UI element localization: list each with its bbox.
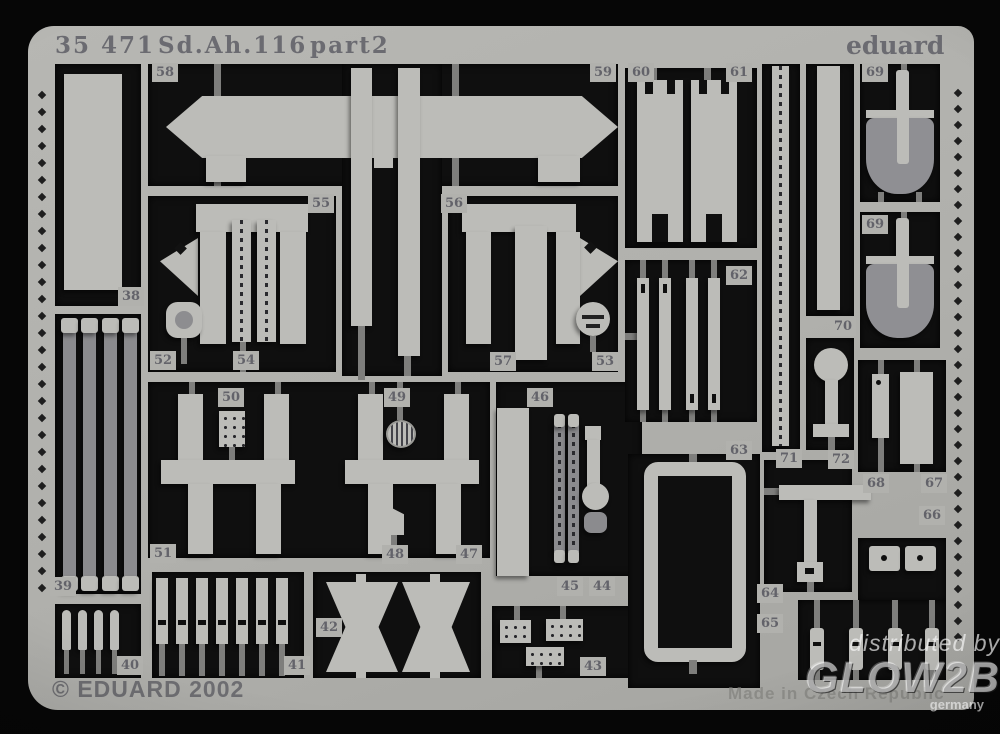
part-label-50: 50 — [218, 388, 244, 407]
part-nub — [356, 574, 366, 584]
registration-dot — [38, 431, 46, 439]
registration-dot — [954, 153, 962, 161]
etched-slot — [158, 620, 166, 625]
registration-dot — [38, 465, 46, 473]
registration-dot — [954, 185, 962, 193]
part-39-cap — [102, 576, 119, 591]
part-label-40: 40 — [117, 656, 143, 675]
sprue-connector — [590, 336, 596, 352]
part-foot — [206, 156, 246, 182]
part-label-54: 54 — [233, 351, 259, 370]
sprue-connector — [914, 464, 920, 472]
part-label-69: 69 — [862, 63, 888, 82]
part-45-cap — [554, 550, 565, 563]
etched-notch — [805, 568, 814, 574]
sprue-connector — [239, 644, 245, 676]
registration-dot — [38, 142, 46, 150]
part-55-bracket — [196, 204, 308, 232]
sprue-connector — [80, 650, 85, 674]
sprue-connector — [914, 360, 920, 372]
part-55-leg — [280, 232, 306, 344]
registration-dot — [954, 233, 962, 241]
part-69-shaft — [897, 260, 909, 308]
etched-hole — [876, 380, 881, 385]
registration-dot — [954, 393, 962, 401]
registration-dot — [38, 533, 46, 541]
part-45-cap — [554, 414, 565, 427]
registration-dot — [38, 210, 46, 218]
part-label-69: 69 — [862, 215, 888, 234]
registration-dot — [954, 601, 962, 609]
part-vertical-strip — [351, 68, 372, 326]
part-41-tooth — [176, 578, 188, 644]
sprue-connector — [625, 333, 637, 340]
sprue-connector — [878, 360, 884, 374]
part-45-cap — [568, 414, 579, 427]
registration-dot — [954, 105, 962, 113]
registration-dot — [38, 567, 46, 575]
part-45-strip — [554, 424, 565, 552]
etched-slot — [198, 620, 206, 625]
part-label-44: 44 — [589, 577, 615, 596]
registration-dot — [954, 553, 962, 561]
etched-notch — [645, 80, 653, 94]
etched-slot — [278, 620, 286, 625]
part-40-pin — [110, 610, 119, 650]
part-40-pin — [78, 610, 87, 650]
etched-mark — [641, 284, 645, 293]
part-51-bracket-leg — [256, 484, 281, 554]
part-39-strip — [124, 330, 137, 576]
part-39-strip — [83, 330, 96, 576]
sprue-connector — [275, 382, 281, 394]
photo-etch-sheet-photo: 35 471 Sd.Ah.116 part2 eduard — [0, 0, 1000, 734]
part-label-65: 65 — [757, 614, 783, 633]
registration-dot — [954, 377, 962, 385]
distributor-watermark: distributed by GLOW2B germany — [758, 632, 1000, 711]
etched-hole — [881, 555, 887, 561]
part-64-stem — [804, 500, 817, 564]
registration-dot — [954, 249, 962, 257]
sprue-connector — [560, 606, 566, 619]
sprue-connector — [455, 382, 461, 394]
part-label-64: 64 — [757, 584, 783, 603]
part-label-43: 43 — [580, 657, 606, 676]
part-62-strip — [659, 278, 671, 410]
registration-dot — [38, 261, 46, 269]
sprue-connector — [159, 644, 165, 676]
sprue-connector — [878, 438, 884, 472]
part-43-plate — [546, 619, 583, 641]
part-label-48: 48 — [382, 545, 408, 564]
registration-dot — [38, 380, 46, 388]
part-51-bracket-bar — [161, 460, 295, 484]
registration-dot — [38, 295, 46, 303]
registration-dot — [954, 345, 962, 353]
part-72-base — [813, 424, 849, 437]
part-41-tooth — [276, 578, 288, 644]
part-39-cap — [61, 318, 78, 333]
registration-dot — [954, 313, 962, 321]
sprue-connector — [892, 600, 898, 630]
part-label-42: 42 — [316, 618, 342, 637]
part-54-strip — [257, 220, 276, 342]
sprue-connector — [259, 644, 265, 676]
part-51-bracket-leg — [178, 394, 203, 466]
registration-dot — [954, 505, 962, 513]
part-41-tooth — [196, 578, 208, 644]
part-44-tab — [585, 426, 601, 440]
part-63-frame — [644, 462, 746, 662]
registration-dot — [954, 441, 962, 449]
part-47-bracket-leg — [436, 484, 461, 554]
registration-dot — [38, 312, 46, 320]
registration-dot — [954, 489, 962, 497]
part-label-67: 67 — [921, 474, 947, 493]
part-72-stem — [825, 380, 838, 426]
part-47-bracket-leg — [444, 394, 469, 466]
registration-dot — [38, 516, 46, 524]
sprue-connector — [764, 488, 779, 495]
sprue-connector — [536, 666, 542, 678]
sprue-connector — [689, 660, 697, 674]
registration-dot — [954, 473, 962, 481]
part-53-slotted-disc — [576, 302, 610, 336]
part-43-plate — [500, 620, 531, 643]
part-39-strip — [63, 330, 76, 576]
registration-dot — [38, 91, 46, 99]
part-39-cap — [81, 576, 98, 591]
sprue-connector — [179, 644, 185, 676]
registration-dot — [954, 617, 962, 625]
registration-dot — [38, 550, 46, 558]
part-label-63: 63 — [726, 441, 752, 460]
registration-dot — [954, 329, 962, 337]
part-57-strip — [515, 226, 547, 360]
part-41-tooth — [236, 578, 248, 644]
registration-dot — [954, 281, 962, 289]
part-label-51: 51 — [150, 544, 176, 563]
etched-notch — [706, 214, 722, 242]
sprue-connector — [181, 338, 187, 364]
sprue-connector — [96, 650, 101, 674]
sprue-connector — [229, 447, 235, 460]
registration-dot — [38, 584, 46, 592]
catalog-number: 35 471 — [55, 32, 155, 59]
part-41-tooth — [156, 578, 168, 644]
sprue-connector — [807, 582, 814, 592]
registration-dot — [38, 363, 46, 371]
part-39-cap — [81, 318, 98, 333]
part-label-61: 61 — [726, 63, 752, 82]
part-label-72: 72 — [828, 450, 854, 469]
part-47-bracket-leg — [358, 394, 383, 466]
registration-dot — [38, 397, 46, 405]
registration-dot — [38, 244, 46, 252]
part-46-plate — [497, 408, 529, 576]
part-49-grille — [386, 420, 416, 448]
registration-dot — [38, 346, 46, 354]
fret-plate: 35 471 Sd.Ah.116 part2 eduard — [28, 26, 974, 710]
part-39-cap — [122, 576, 139, 591]
registration-dot — [954, 89, 962, 97]
part-39-cap — [122, 318, 139, 333]
watermark-line1: distributed by — [758, 632, 1000, 655]
part-vertical-strip — [398, 68, 420, 356]
part-44-stem — [587, 440, 600, 486]
watermark-logo: GLOW2B — [758, 657, 1000, 700]
part-nub — [430, 574, 440, 584]
part-39-cap — [102, 318, 119, 333]
sprue-connector — [214, 64, 221, 98]
registration-dot — [954, 137, 962, 145]
registration-dot — [954, 121, 962, 129]
part-62-strip — [708, 278, 720, 410]
sprue-connector — [828, 437, 835, 450]
part-58-59-long-bar — [166, 96, 618, 158]
registration-dot — [38, 176, 46, 184]
sprue-connector — [369, 382, 375, 394]
registration-dot — [954, 537, 962, 545]
part-foot — [538, 156, 580, 182]
part-72-head — [814, 348, 848, 382]
registration-dot — [38, 278, 46, 286]
registration-dot — [38, 448, 46, 456]
registration-dot — [38, 227, 46, 235]
sprue-connector — [358, 326, 365, 380]
registration-dot — [38, 125, 46, 133]
registration-dot — [954, 201, 962, 209]
registration-dot — [954, 585, 962, 593]
part-39-strip — [104, 330, 117, 576]
part-69-shaft — [897, 114, 909, 164]
registration-dot — [954, 425, 962, 433]
sprue-connector — [199, 644, 205, 676]
part-label-49: 49 — [384, 388, 410, 407]
sprue-connector — [878, 192, 884, 202]
sprue-connector — [219, 644, 225, 676]
sprue-connector — [814, 600, 820, 630]
part-55-leg — [200, 232, 226, 344]
part-nub — [430, 670, 440, 678]
brand-logo: eduard — [846, 31, 944, 60]
part-44-ball — [582, 483, 609, 510]
part-71-strip — [772, 66, 789, 446]
part-40-pin — [94, 610, 103, 650]
part-label-46: 46 — [527, 388, 553, 407]
registration-dot — [954, 521, 962, 529]
registration-dot — [954, 297, 962, 305]
registration-dot — [954, 457, 962, 465]
part-56-leg — [466, 232, 491, 344]
etched-notch — [721, 80, 729, 94]
part-label-56: 56 — [441, 194, 467, 213]
part-label-58: 58 — [152, 63, 178, 82]
part-44-disc — [584, 512, 607, 533]
part-62-strip — [637, 278, 649, 410]
registration-dot — [954, 361, 962, 369]
registration-dot — [954, 265, 962, 273]
part-47-bracket-bar — [345, 460, 479, 484]
etched-slot — [238, 620, 246, 625]
etched-notch — [667, 80, 675, 94]
part-label-68: 68 — [863, 474, 889, 493]
part-label-60: 60 — [628, 63, 654, 82]
part-label-55: 55 — [308, 194, 334, 213]
registration-dot — [38, 159, 46, 167]
registration-dot — [38, 108, 46, 116]
part-label-45: 45 — [557, 577, 583, 596]
kit-name: Sd.Ah.116 — [158, 32, 307, 59]
etched-notch — [699, 80, 707, 94]
part-50-plate — [219, 411, 245, 447]
part-nub — [356, 670, 366, 678]
etched-mark — [712, 394, 716, 403]
sprue-connector — [452, 64, 459, 98]
part-52-hub — [175, 311, 193, 329]
part-label-57: 57 — [490, 352, 516, 371]
registration-dot — [38, 499, 46, 507]
part-41-tooth — [256, 578, 268, 644]
part-label-53: 53 — [592, 352, 618, 371]
registration-dot — [38, 329, 46, 337]
part-64-bar — [779, 485, 871, 500]
part-51-bracket-leg — [264, 394, 289, 466]
etched-slot — [218, 620, 226, 625]
part-label-41: 41 — [284, 656, 310, 675]
part-38-shape — [64, 74, 122, 290]
part-label-70: 70 — [830, 317, 856, 336]
etched-notch — [652, 214, 668, 242]
part-label-62: 62 — [726, 266, 752, 285]
etched-mark — [663, 284, 667, 293]
registration-dot — [38, 193, 46, 201]
part-label-38: 38 — [118, 287, 144, 306]
part-56-leg — [556, 232, 580, 344]
registration-dot — [954, 569, 962, 577]
registration-dot — [954, 217, 962, 225]
etched-mark — [690, 394, 694, 403]
part-67-shape — [900, 372, 933, 464]
part-nub — [374, 158, 393, 168]
part-41-tooth — [216, 578, 228, 644]
part-62-strip — [686, 278, 698, 410]
sprue-connector — [514, 606, 520, 620]
registration-dot — [38, 414, 46, 422]
sprue-connector — [704, 68, 711, 80]
sprue-connector — [929, 600, 935, 630]
part-designation: part2 — [310, 32, 390, 59]
sprue-connector — [189, 382, 195, 394]
sprue-connector — [916, 192, 922, 202]
part-label-66: 66 — [919, 506, 945, 525]
part-70-strip — [817, 66, 840, 310]
registration-dot — [38, 482, 46, 490]
sprue-connector — [404, 356, 411, 376]
part-label-39: 39 — [50, 577, 76, 596]
sprue-connector — [64, 650, 69, 674]
sprue-connector — [853, 600, 859, 630]
copyright-text: © EDUARD 2002 — [52, 676, 244, 703]
part-label-59: 59 — [590, 63, 616, 82]
registration-dot — [954, 409, 962, 417]
part-54-strip — [232, 220, 251, 342]
part-40-pin — [62, 610, 71, 650]
etched-slot — [258, 620, 266, 625]
part-label-52: 52 — [150, 351, 176, 370]
part-43-plate — [526, 647, 564, 666]
part-45-cap — [568, 550, 579, 563]
part-label-47: 47 — [456, 545, 482, 564]
etched-hole — [917, 555, 923, 561]
registration-dot — [954, 169, 962, 177]
part-51-bracket-leg — [188, 484, 213, 554]
part-45-strip — [568, 424, 579, 552]
part-label-71: 71 — [776, 449, 802, 468]
sprue-connector — [452, 158, 459, 186]
etched-slot — [178, 620, 186, 625]
